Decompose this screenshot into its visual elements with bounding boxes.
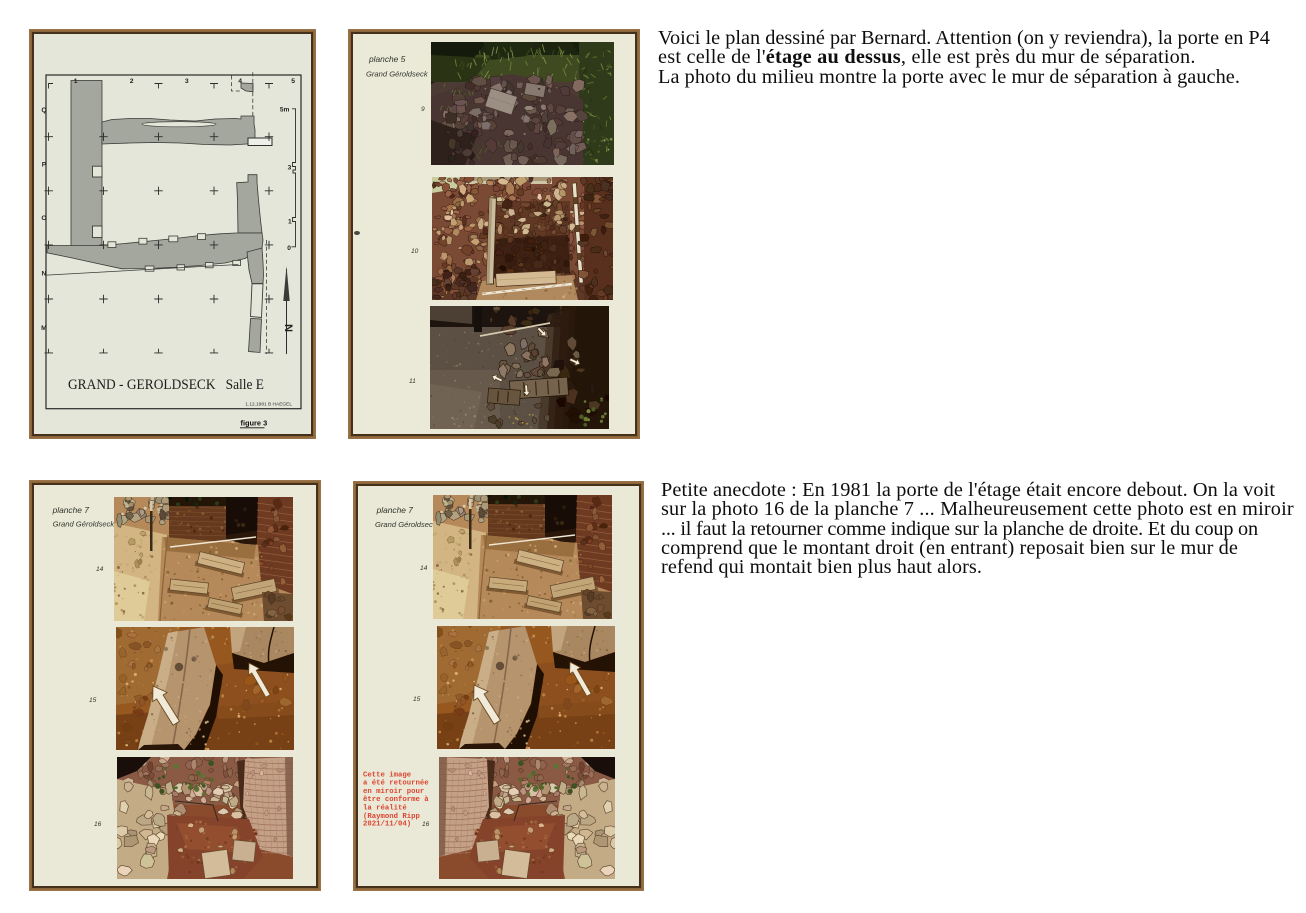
svg-text:la réalité: la réalité (363, 804, 407, 812)
svg-text:O: O (41, 215, 46, 222)
svg-text:N: N (284, 324, 296, 332)
svg-text:planche 7: planche 7 (376, 505, 414, 515)
svg-text:2021/11/04): 2021/11/04) (363, 821, 411, 829)
svg-text:en miroir pour: en miroir pour (363, 788, 424, 796)
svg-text:16: 16 (422, 821, 430, 828)
svg-text:Grand Géroldseck: Grand Géroldseck (366, 70, 429, 79)
svg-text:5m: 5m (280, 107, 290, 114)
svg-text:14: 14 (96, 566, 104, 573)
svg-text:3: 3 (288, 165, 292, 172)
svg-text:1: 1 (288, 219, 292, 226)
svg-text:10: 10 (411, 248, 419, 255)
svg-text:Cette image: Cette image (363, 771, 412, 779)
svg-text:15: 15 (413, 696, 421, 703)
svg-text:1.12.1981 B HAEGEL: 1.12.1981 B HAEGEL (245, 402, 292, 408)
svg-text:(Raymond Ripp: (Raymond Ripp (363, 813, 421, 821)
svg-text:GRAND - GEROLDSECK Salle E: GRAND - GEROLDSECK Salle E (68, 377, 264, 393)
svg-text:être conforme à: être conforme à (363, 796, 429, 804)
svg-text:P: P (42, 162, 47, 169)
svg-text:4: 4 (238, 78, 242, 85)
svg-text:3: 3 (185, 78, 189, 85)
svg-text:16: 16 (94, 821, 102, 828)
svg-text:N: N (42, 271, 47, 278)
svg-text:9: 9 (421, 106, 425, 113)
svg-text:14: 14 (420, 565, 428, 572)
svg-text:Grand Géroldseck: Grand Géroldseck (375, 520, 438, 529)
svg-text:11: 11 (409, 378, 416, 385)
svg-text:M: M (41, 325, 47, 332)
svg-text:planche 5: planche 5 (368, 54, 406, 64)
svg-text:2: 2 (130, 78, 134, 85)
svg-text:1: 1 (74, 78, 78, 85)
svg-text:0: 0 (287, 245, 291, 252)
svg-text:Grand Géroldseck: Grand Géroldseck (53, 520, 116, 529)
svg-text:figure 3: figure 3 (241, 419, 268, 428)
svg-text:planche 7: planche 7 (52, 505, 90, 515)
svg-text:15: 15 (89, 697, 97, 704)
svg-text:a été retournée: a été retournée (363, 780, 429, 788)
svg-text:Q: Q (41, 107, 46, 114)
svg-text:5: 5 (291, 78, 295, 85)
